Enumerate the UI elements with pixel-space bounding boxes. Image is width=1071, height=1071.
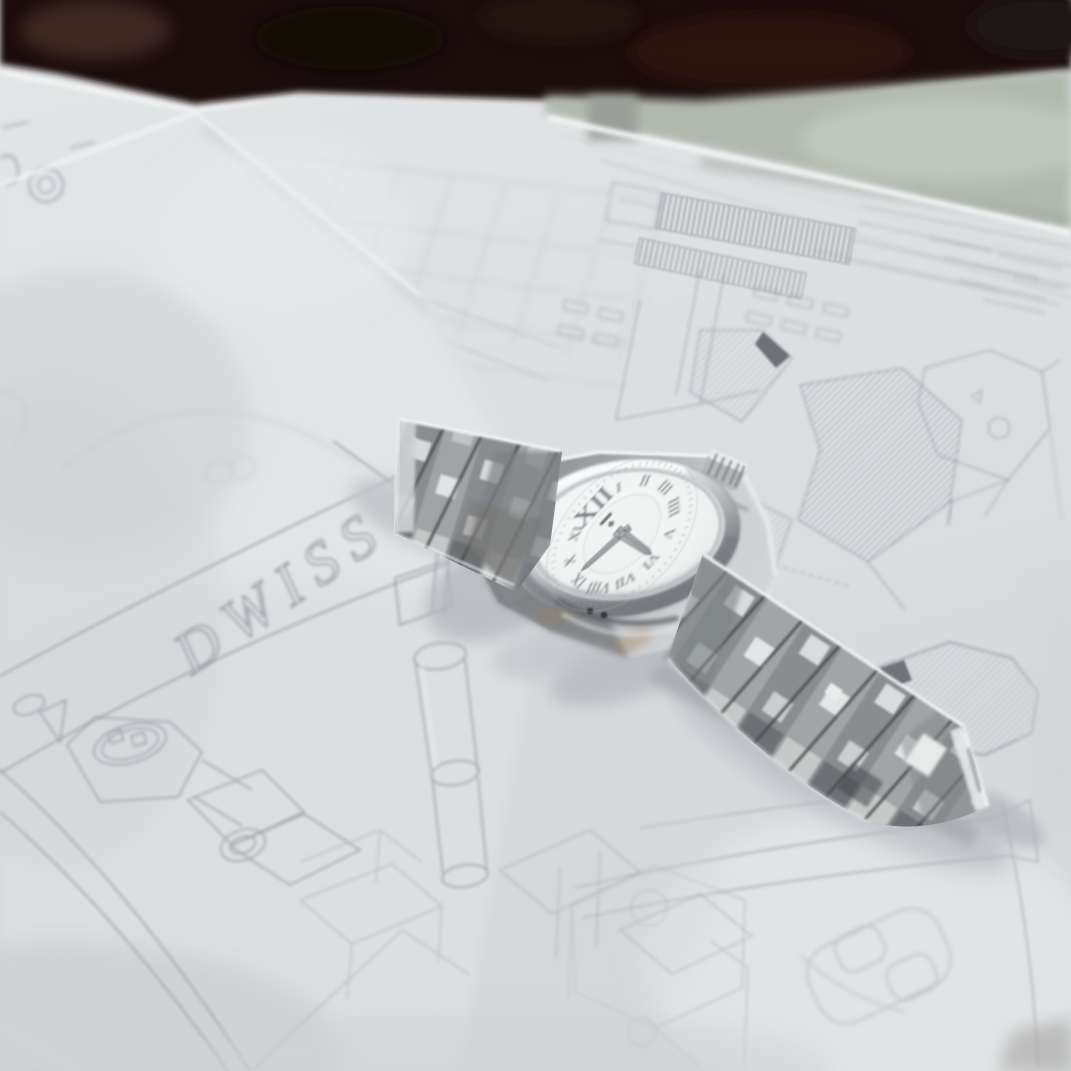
svg-text:I: I (616, 480, 622, 497)
